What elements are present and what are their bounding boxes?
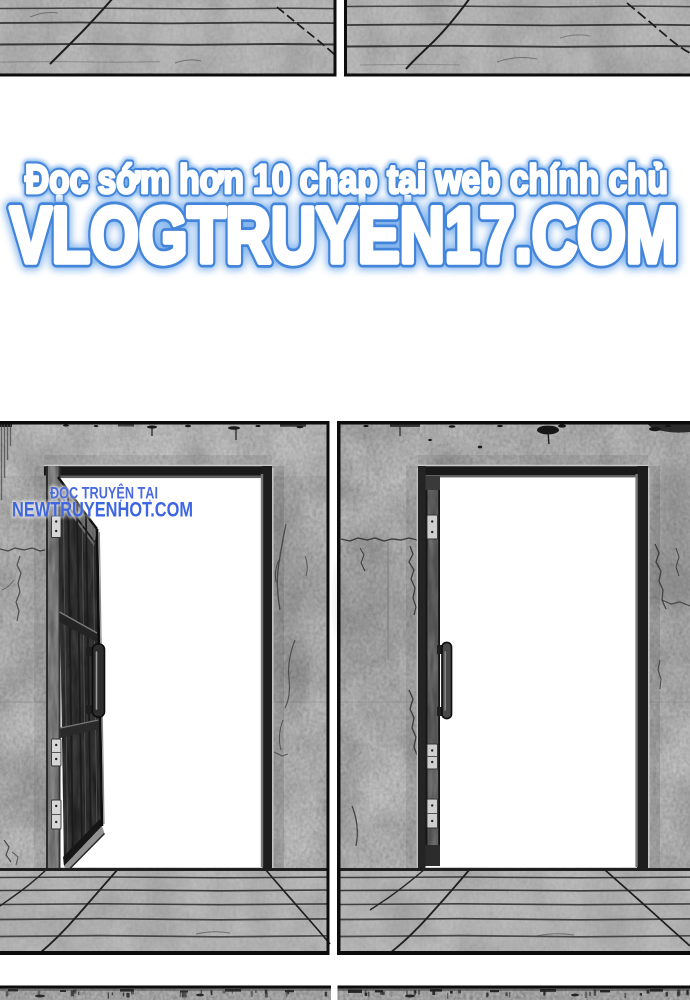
svg-text:VLOGTRUYEN17.COM: VLOGTRUYEN17.COM xyxy=(10,190,678,279)
svg-text:NEWTRUYENHOT.COM: NEWTRUYENHOT.COM xyxy=(12,499,193,522)
